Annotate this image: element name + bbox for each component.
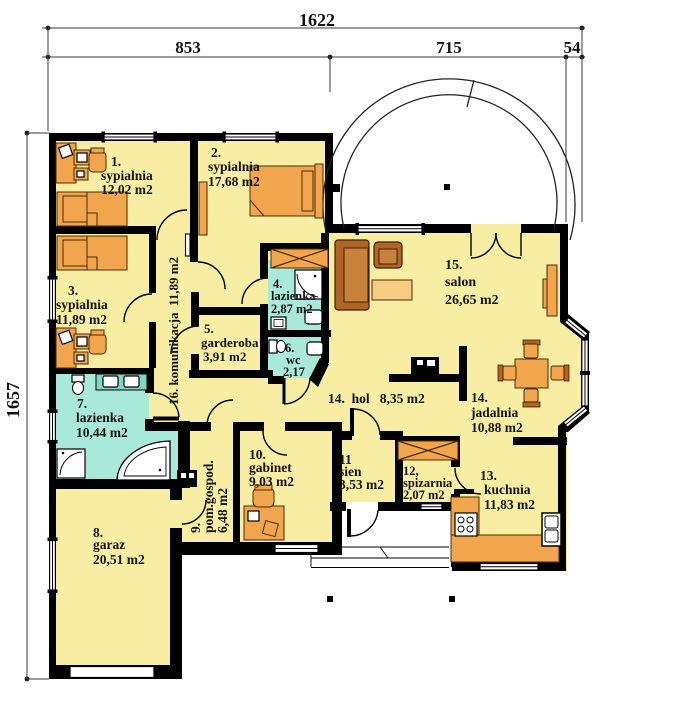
svg-text:16. komunikacja 11,89 m2: 16. komunikacja 11,89 m2 xyxy=(166,257,181,405)
svg-text:12,02 m2: 12,02 m2 xyxy=(101,182,153,197)
svg-text:715: 715 xyxy=(436,38,462,57)
svg-text:26,65 m2: 26,65 m2 xyxy=(445,293,499,308)
svg-text:salon: salon xyxy=(445,275,476,290)
svg-text:gabinet: gabinet xyxy=(249,460,292,475)
svg-text:5.: 5. xyxy=(204,321,214,336)
svg-text:lazienka: lazienka xyxy=(76,410,124,425)
svg-text:1622: 1622 xyxy=(299,10,335,30)
svg-text:10,88 m2: 10,88 m2 xyxy=(471,420,523,435)
svg-text:17,68 m2: 17,68 m2 xyxy=(208,174,260,189)
svg-text:11,83 m2: 11,83 m2 xyxy=(484,497,535,512)
svg-text:11,89 m2: 11,89 m2 xyxy=(56,312,107,327)
svg-text:kuchnia: kuchnia xyxy=(484,482,531,497)
svg-text:sypialnia: sypialnia xyxy=(208,159,260,174)
svg-text:sypialnia: sypialnia xyxy=(101,168,153,183)
svg-text:13.: 13. xyxy=(480,468,497,483)
svg-text:54: 54 xyxy=(564,38,582,57)
svg-text:2,17: 2,17 xyxy=(283,365,305,379)
svg-text:14.: 14. xyxy=(471,390,488,405)
svg-text:3,53 m2: 3,53 m2 xyxy=(339,477,384,492)
svg-text:1.: 1. xyxy=(111,154,121,169)
svg-text:3,91 m2: 3,91 m2 xyxy=(203,349,246,364)
svg-text:7.: 7. xyxy=(77,396,87,411)
svg-text:6,48 m2: 6,48 m2 xyxy=(215,488,230,533)
svg-text:jadalnia: jadalnia xyxy=(470,405,519,420)
svg-text:garaz: garaz xyxy=(93,537,125,552)
svg-text:853: 853 xyxy=(175,38,201,57)
svg-text:15.: 15. xyxy=(445,258,463,273)
svg-text:14. hol 8,35 m2: 14. hol 8,35 m2 xyxy=(328,391,425,406)
svg-text:2.: 2. xyxy=(211,145,221,160)
svg-text:2,87 m2: 2,87 m2 xyxy=(271,302,313,316)
svg-text:garderoba: garderoba xyxy=(201,335,259,350)
svg-text:10,44 m2: 10,44 m2 xyxy=(76,425,128,440)
svg-text:9,03 m2: 9,03 m2 xyxy=(249,474,294,489)
svg-text:pom.gospod.: pom.gospod. xyxy=(201,460,216,533)
svg-text:20,51 m2: 20,51 m2 xyxy=(93,552,145,567)
svg-text:2,07 m2: 2,07 m2 xyxy=(403,488,445,502)
svg-text:3.: 3. xyxy=(68,283,78,298)
svg-text:1657: 1657 xyxy=(3,382,23,418)
svg-text:sypialnia: sypialnia xyxy=(56,297,108,312)
svg-text:lazienka: lazienka xyxy=(271,289,316,303)
